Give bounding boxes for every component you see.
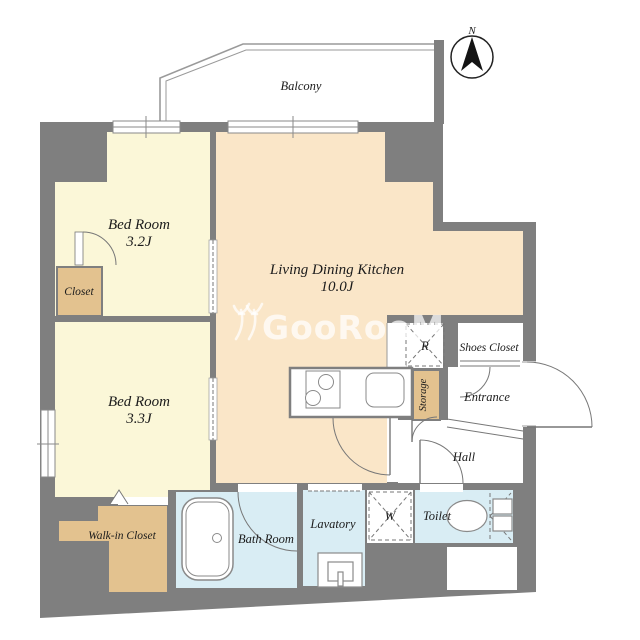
burner [319, 375, 334, 390]
entrance-door-opening [522, 361, 536, 427]
refrigerator-marker-label: R [420, 339, 429, 353]
north-arrow-icon [461, 37, 483, 71]
watermark-text: GooRooM [262, 308, 445, 347]
floor-plan: N GooRooM Balcony Bed Room 3.2J Bed Room… [0, 0, 640, 640]
closet-label: Closet [64, 286, 94, 298]
shoes-closet-label: Shoes Closet [459, 342, 519, 354]
hall-label: Hall [452, 450, 476, 464]
compass-north-label: N [467, 25, 476, 37]
bathtub [182, 498, 233, 580]
bedroom-2-label: Bed Room [108, 394, 170, 410]
ldk-label: Living Dining Kitchen [269, 262, 404, 278]
balcony-label: Balcony [281, 79, 322, 93]
ldk-size: 10.0J [321, 279, 355, 295]
exterior-notch [447, 547, 517, 590]
storage-label: Storage [418, 378, 429, 411]
sliding-door-bedroom-1 [209, 240, 217, 313]
entrance-door-arc [527, 362, 592, 427]
compass: N [451, 25, 493, 78]
burner [306, 391, 321, 406]
ldk-doorway [387, 418, 398, 482]
washer-marker-label: W [385, 509, 397, 523]
walk-in-closet-label: Walk-in Closet [88, 530, 156, 542]
lavatory-sink [318, 553, 362, 587]
entrance-label: Entrance [463, 390, 510, 404]
bath-room-label: Bath Room [238, 532, 294, 546]
watermark: GooRooM [234, 304, 445, 347]
toilet-door-opening [420, 484, 463, 492]
bedroom-1-label: Bed Room [108, 217, 170, 233]
floor-plan-drawing: N GooRooM Balcony Bed Room 3.2J Bed Room… [0, 0, 640, 640]
bedroom-1-size: 3.2J [125, 234, 153, 250]
bedroom-2-size: 3.3J [125, 411, 153, 427]
toilet-label: Toilet [423, 509, 452, 523]
lavatory-sliding-door [308, 484, 362, 491]
bath-door-opening [238, 484, 297, 492]
kitchen-sink [366, 373, 404, 407]
lavatory-label: Lavatory [309, 517, 356, 531]
sliding-door-bedroom-2 [209, 378, 217, 440]
